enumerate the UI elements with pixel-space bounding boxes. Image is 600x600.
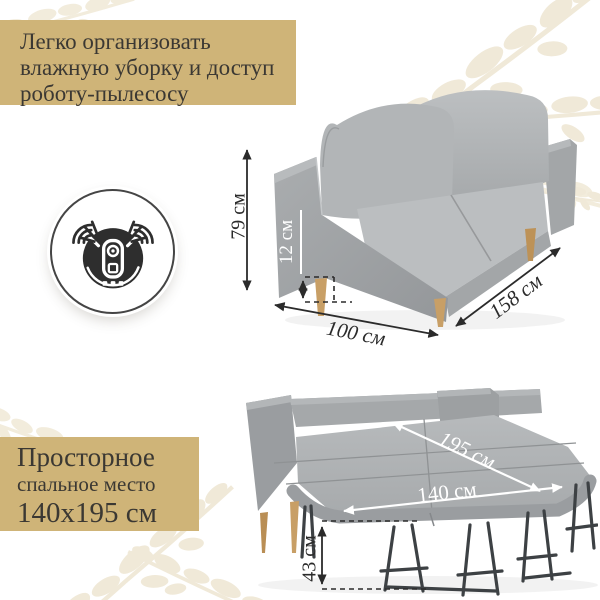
dim-clearance-label: 12 см xyxy=(276,210,302,274)
callout-line: Легко организовать xyxy=(20,29,296,55)
callout-line: роботу-пылесосу xyxy=(20,81,296,107)
sofa-closed-illustration xyxy=(265,85,585,335)
dim-height-label: 79 см xyxy=(228,182,251,252)
dim-bed-height-label: 43 см xyxy=(299,524,322,594)
callout-sleeping-area: Просторное спальное место 140х195 см xyxy=(0,437,199,531)
product-infographic: Легко организовать влажную уборку и дост… xyxy=(0,0,600,600)
robot-vacuum-badge xyxy=(50,189,175,314)
callout-line: спальное место xyxy=(17,472,199,496)
callout-robot-vacuum: Легко организовать влажную уборку и дост… xyxy=(0,20,296,105)
callout-line: 140х195 см xyxy=(17,496,199,530)
robot-vacuum-icon xyxy=(61,200,165,304)
callout-line: Просторное xyxy=(17,442,199,472)
callout-line: влажную уборку и доступ xyxy=(20,55,296,81)
